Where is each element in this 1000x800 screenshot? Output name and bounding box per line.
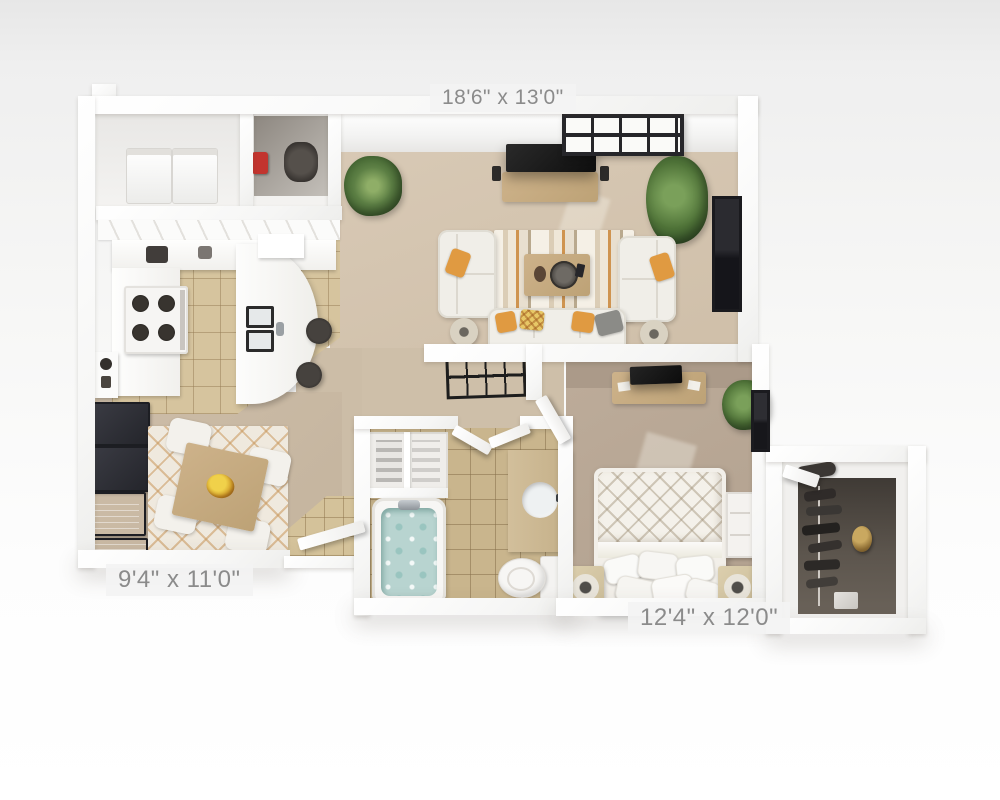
dresser-drawer-line <box>730 534 750 536</box>
desk-paper <box>687 380 700 391</box>
bathtub <box>372 498 446 606</box>
living-window-top <box>562 114 684 156</box>
nightstand-lamp <box>572 574 599 601</box>
living-window-right <box>712 196 742 312</box>
burner <box>158 295 175 312</box>
dresser-drawer-line <box>730 512 750 514</box>
remote <box>575 263 586 277</box>
sofa-right <box>618 236 676 322</box>
bathroom-top-wall-left <box>354 416 458 429</box>
palm-plant <box>344 156 402 216</box>
toilet-seat-ring <box>507 567 535 591</box>
washer <box>126 148 172 204</box>
closet-right-wall <box>908 446 926 634</box>
tub-water <box>381 508 437 596</box>
bar-stool <box>296 362 322 388</box>
bedroom-dimensions-label: 12'4" x 12'0" <box>628 602 790 634</box>
outer-wall-top <box>84 96 758 114</box>
utility-heater <box>284 142 318 182</box>
nightstand-lamp <box>724 574 751 601</box>
side-cabinet <box>94 352 118 398</box>
speaker-left <box>492 166 501 181</box>
linen-closet-front-wall <box>368 488 448 498</box>
towel-stack <box>412 440 440 482</box>
towel-stack <box>376 440 402 482</box>
living-bottom-wall <box>424 344 756 362</box>
oven-door-edge <box>180 290 185 350</box>
bar-stool <box>306 318 332 344</box>
floor-lamp-left <box>450 318 478 346</box>
floorplan-render: { "image_type": "3D top-down apartment f… <box>0 0 1000 800</box>
bedroom-window-right <box>751 390 770 452</box>
bed <box>594 468 726 614</box>
burner <box>132 324 149 341</box>
dryer <box>172 148 218 204</box>
bed-duvet-quilt <box>598 472 722 544</box>
orange-pillow <box>571 311 596 334</box>
shoe-box <box>834 592 858 609</box>
burner <box>132 295 149 312</box>
vanity-sink <box>522 482 558 518</box>
coffee-table <box>524 254 590 296</box>
wall-art-frame <box>90 446 150 492</box>
lattice-pillow <box>519 309 545 331</box>
red-detergent <box>252 152 268 174</box>
bath-bedroom-divider-wall <box>558 416 573 612</box>
linen-divider <box>404 432 410 490</box>
living-room-dimensions-label: 18'6" x 13'0" <box>430 84 576 112</box>
speaker-right <box>600 166 609 181</box>
sofa-left <box>438 230 496 318</box>
linen-closet <box>368 432 448 490</box>
wall-art-frame <box>92 402 150 446</box>
bedroom-tv <box>630 365 683 385</box>
island-faucet <box>276 322 284 336</box>
outer-wall-left <box>78 96 95 568</box>
dining-area-dimensions-label: 9'4" x 11'0" <box>106 564 253 596</box>
floor-plan: 18'6" x 13'0" 9'4" x 11'0" 12'4" x 12'0" <box>0 0 1000 800</box>
coffee-maker <box>146 246 168 263</box>
laundry-divider-wall <box>240 112 253 208</box>
sofa-cushion-line <box>622 278 656 280</box>
corner-plant <box>646 156 708 244</box>
laundry-right-wall <box>328 112 341 208</box>
island-sink-basin <box>246 306 274 328</box>
desk-paper <box>617 381 630 392</box>
bedroom-door-stub-wall <box>526 344 542 400</box>
burner <box>158 324 175 341</box>
kitchen-top-wall <box>96 206 342 220</box>
bedroom-dresser <box>726 492 754 558</box>
decor-item <box>100 358 112 370</box>
tub-faucet <box>398 500 420 510</box>
stove <box>124 286 188 354</box>
island-sink-basin <box>246 330 274 352</box>
decor-item <box>101 376 111 388</box>
closet-top-wall <box>766 446 926 462</box>
tv-console <box>502 172 598 202</box>
small-appliance <box>198 246 212 259</box>
hanging-clothes <box>804 559 840 571</box>
bathroom-bottom-wall <box>354 598 574 615</box>
toilet-bowl <box>498 558 546 598</box>
decor-vase <box>534 266 546 282</box>
gold-bag <box>852 526 872 552</box>
island-bar-ledge <box>258 234 304 258</box>
orange-pillow <box>494 310 517 333</box>
